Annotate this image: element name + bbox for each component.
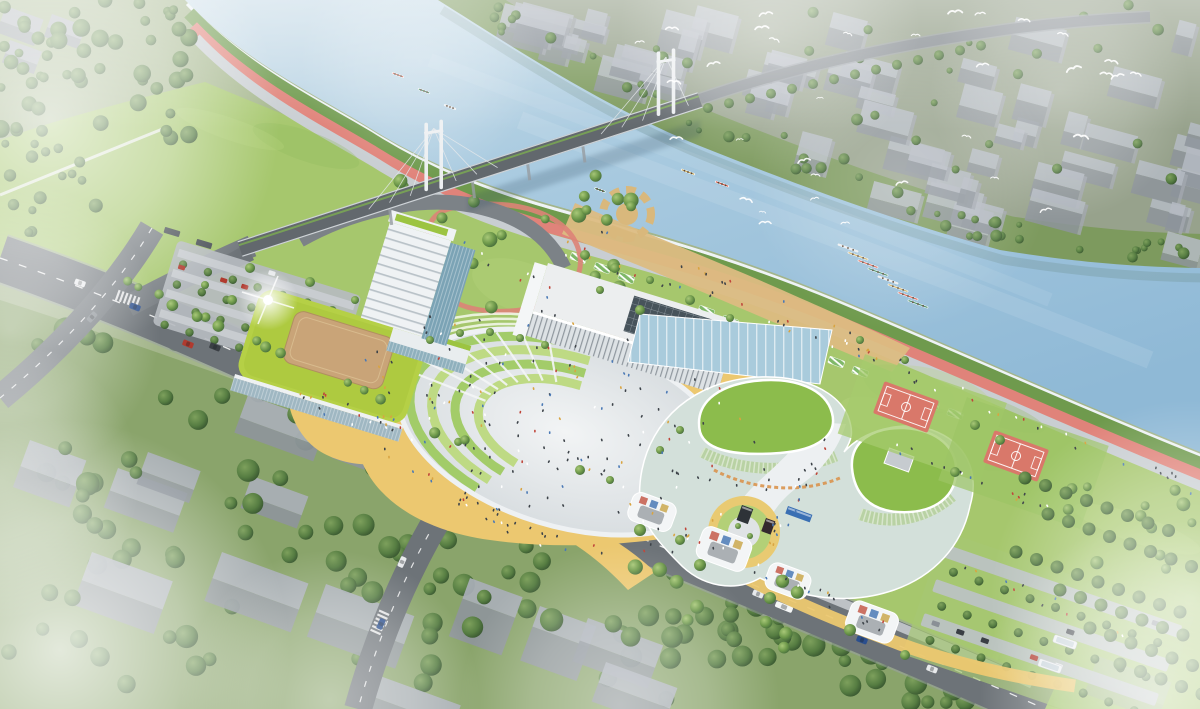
bridge-pier bbox=[583, 146, 585, 162]
rendering-stage bbox=[0, 0, 1200, 709]
atmosphere-veil bbox=[0, 0, 1200, 130]
bridge-pier bbox=[390, 209, 392, 225]
green-roof-west bbox=[699, 380, 833, 454]
bridge-pier bbox=[528, 164, 530, 180]
aerial-rendering bbox=[0, 0, 1200, 709]
bridge-pier bbox=[473, 182, 475, 198]
sun-glint bbox=[238, 270, 298, 330]
